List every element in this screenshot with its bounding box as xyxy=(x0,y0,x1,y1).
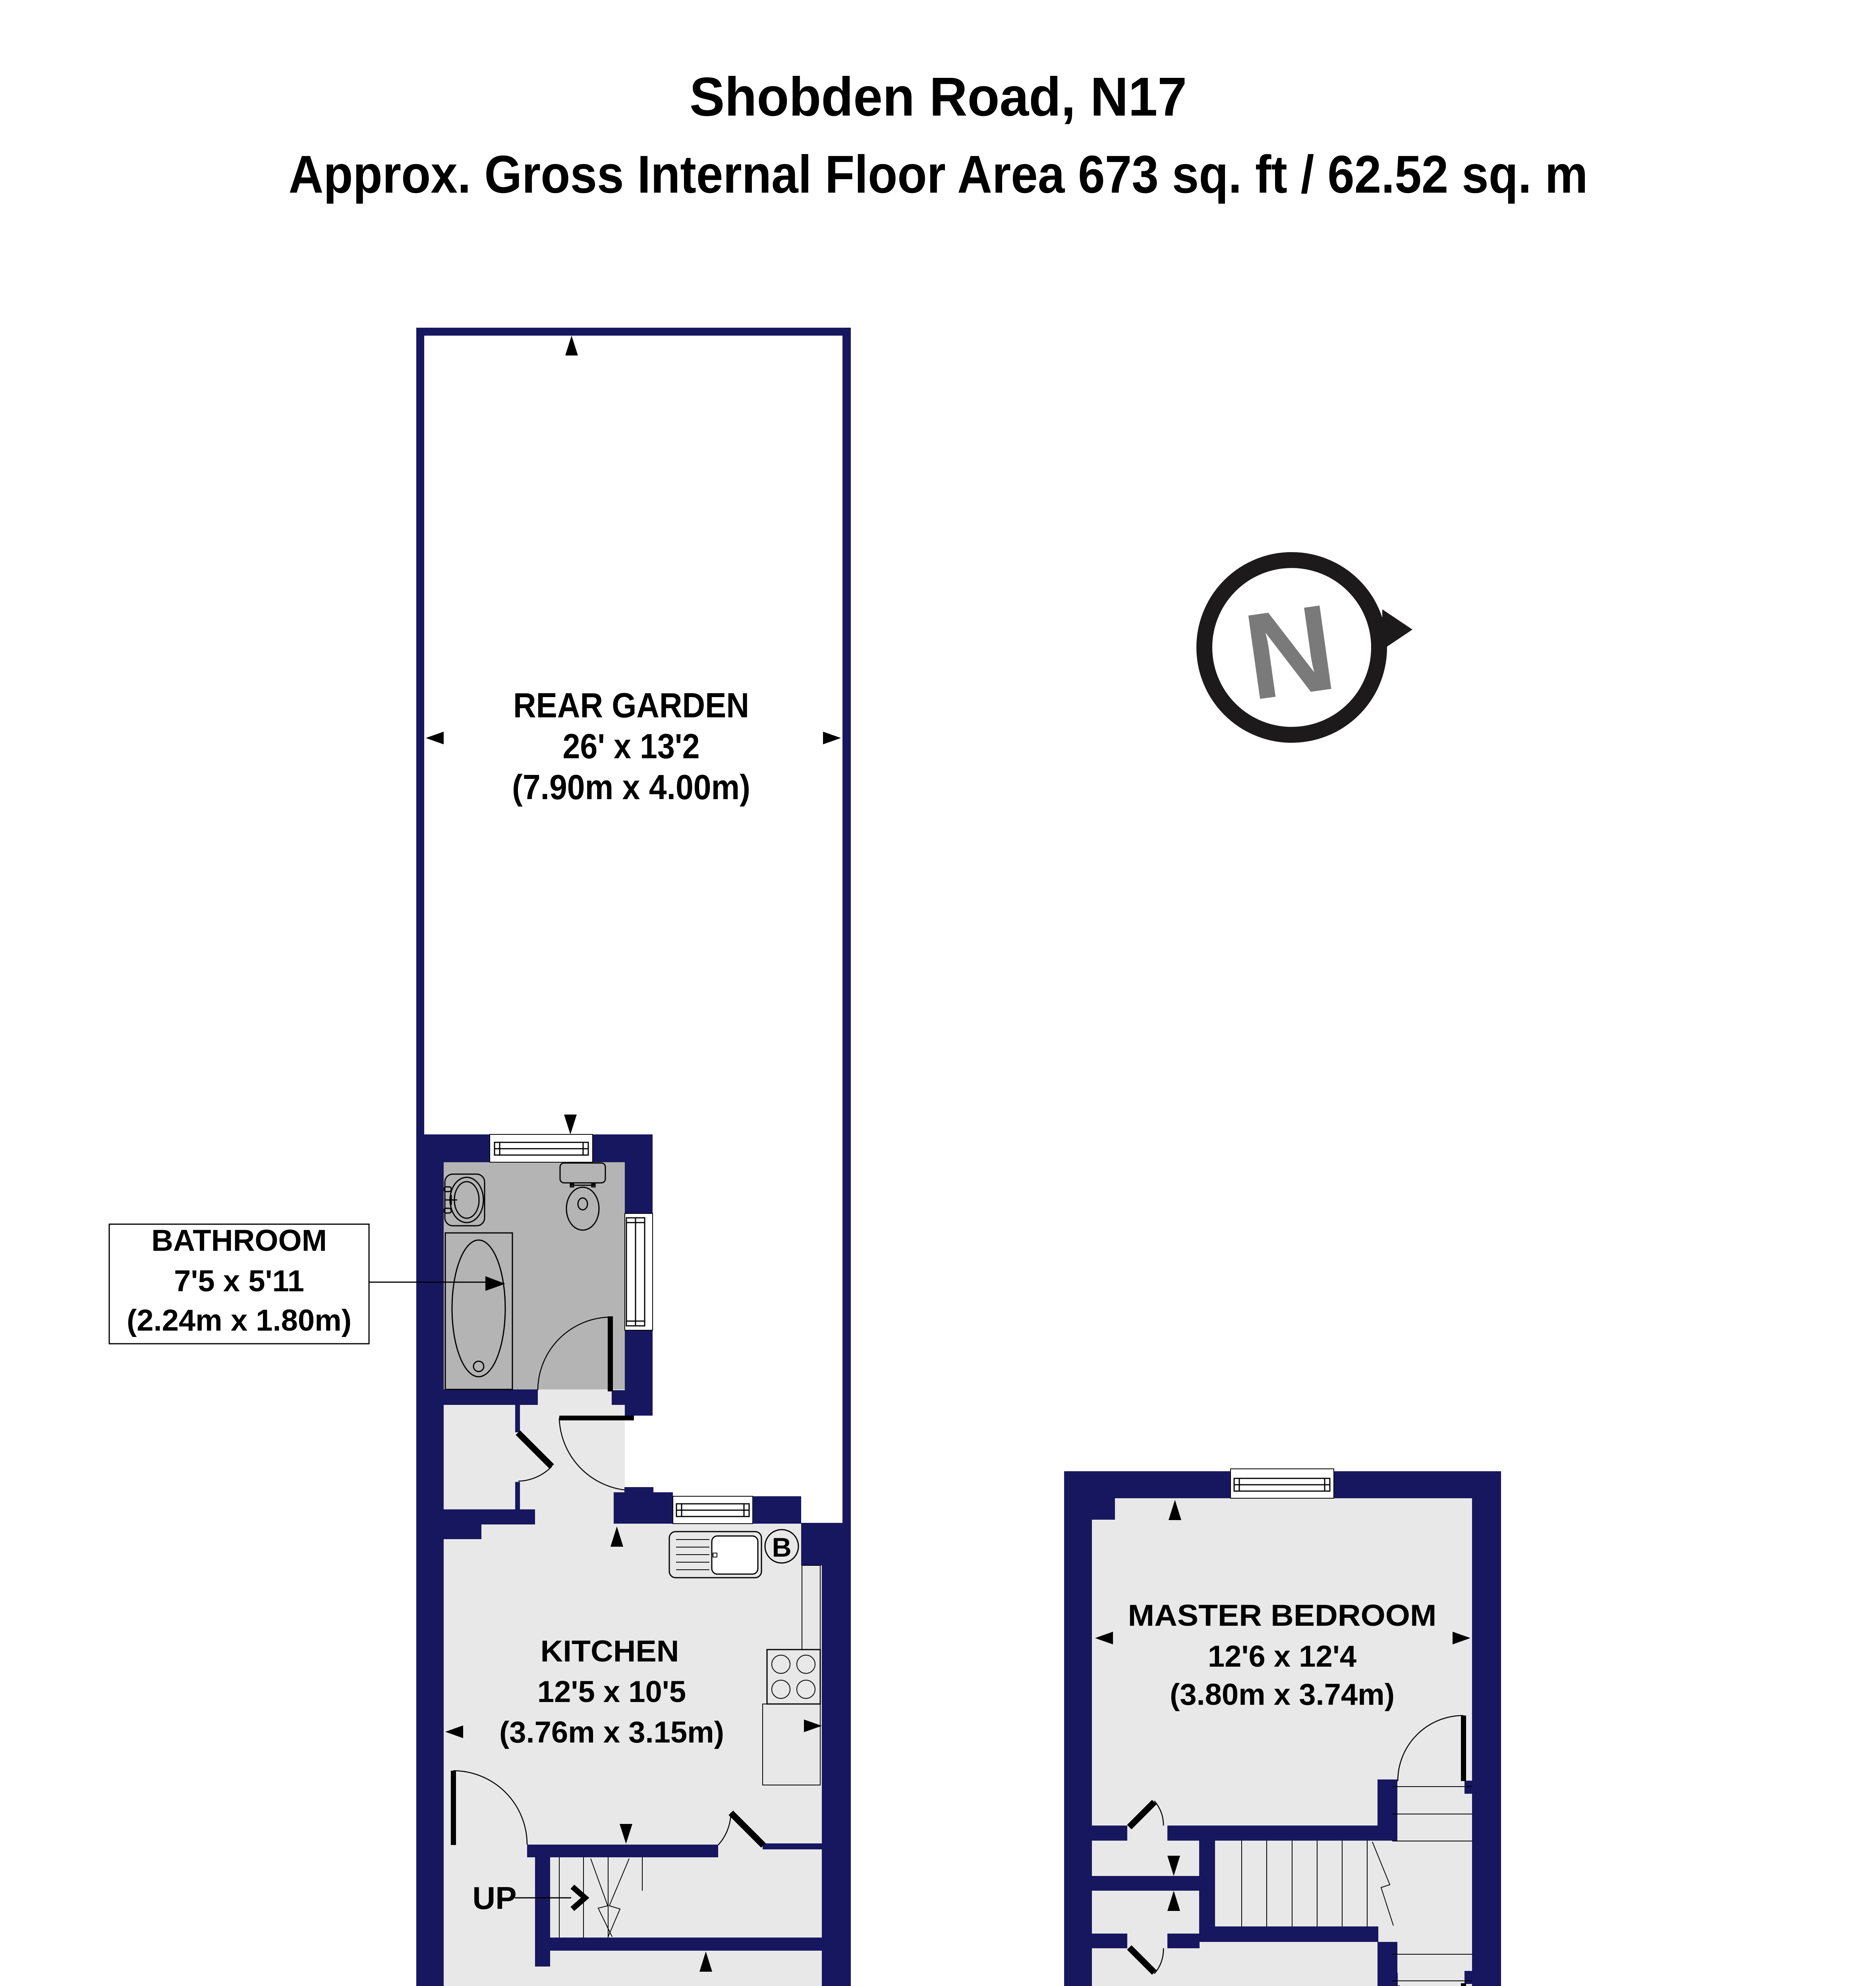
svg-text:(3.76m x 3.15m): (3.76m x 3.15m) xyxy=(499,1716,724,1749)
svg-text:12'5 x 10'5: 12'5 x 10'5 xyxy=(537,1675,686,1709)
svg-text:UP: UP xyxy=(472,1880,516,1916)
svg-text:REAR GARDEN: REAR GARDEN xyxy=(513,686,749,725)
svg-text:26' x 13'2: 26' x 13'2 xyxy=(563,726,700,766)
svg-text:B: B xyxy=(772,1532,791,1563)
svg-text:BATHROOM: BATHROOM xyxy=(151,1224,327,1258)
svg-text:MASTER BEDROOM: MASTER BEDROOM xyxy=(1128,1599,1437,1632)
svg-text:7'5 x 5'11: 7'5 x 5'11 xyxy=(174,1264,304,1298)
svg-text:(2.24m x 1.80m): (2.24m x 1.80m) xyxy=(127,1304,352,1337)
svg-text:N: N xyxy=(1236,578,1343,726)
svg-text:Shobden Road, N17: Shobden Road, N17 xyxy=(690,66,1187,128)
svg-text:12'6 x 12'4: 12'6 x 12'4 xyxy=(1208,1640,1356,1673)
svg-text:(7.90m x 4.00m): (7.90m x 4.00m) xyxy=(512,767,750,807)
svg-text:(3.80m x 3.74m): (3.80m x 3.74m) xyxy=(1170,1678,1395,1712)
svg-text:Approx. Gross Internal Floor A: Approx. Gross Internal Floor Area 673 sq… xyxy=(289,145,1588,204)
svg-text:KITCHEN: KITCHEN xyxy=(541,1634,679,1668)
